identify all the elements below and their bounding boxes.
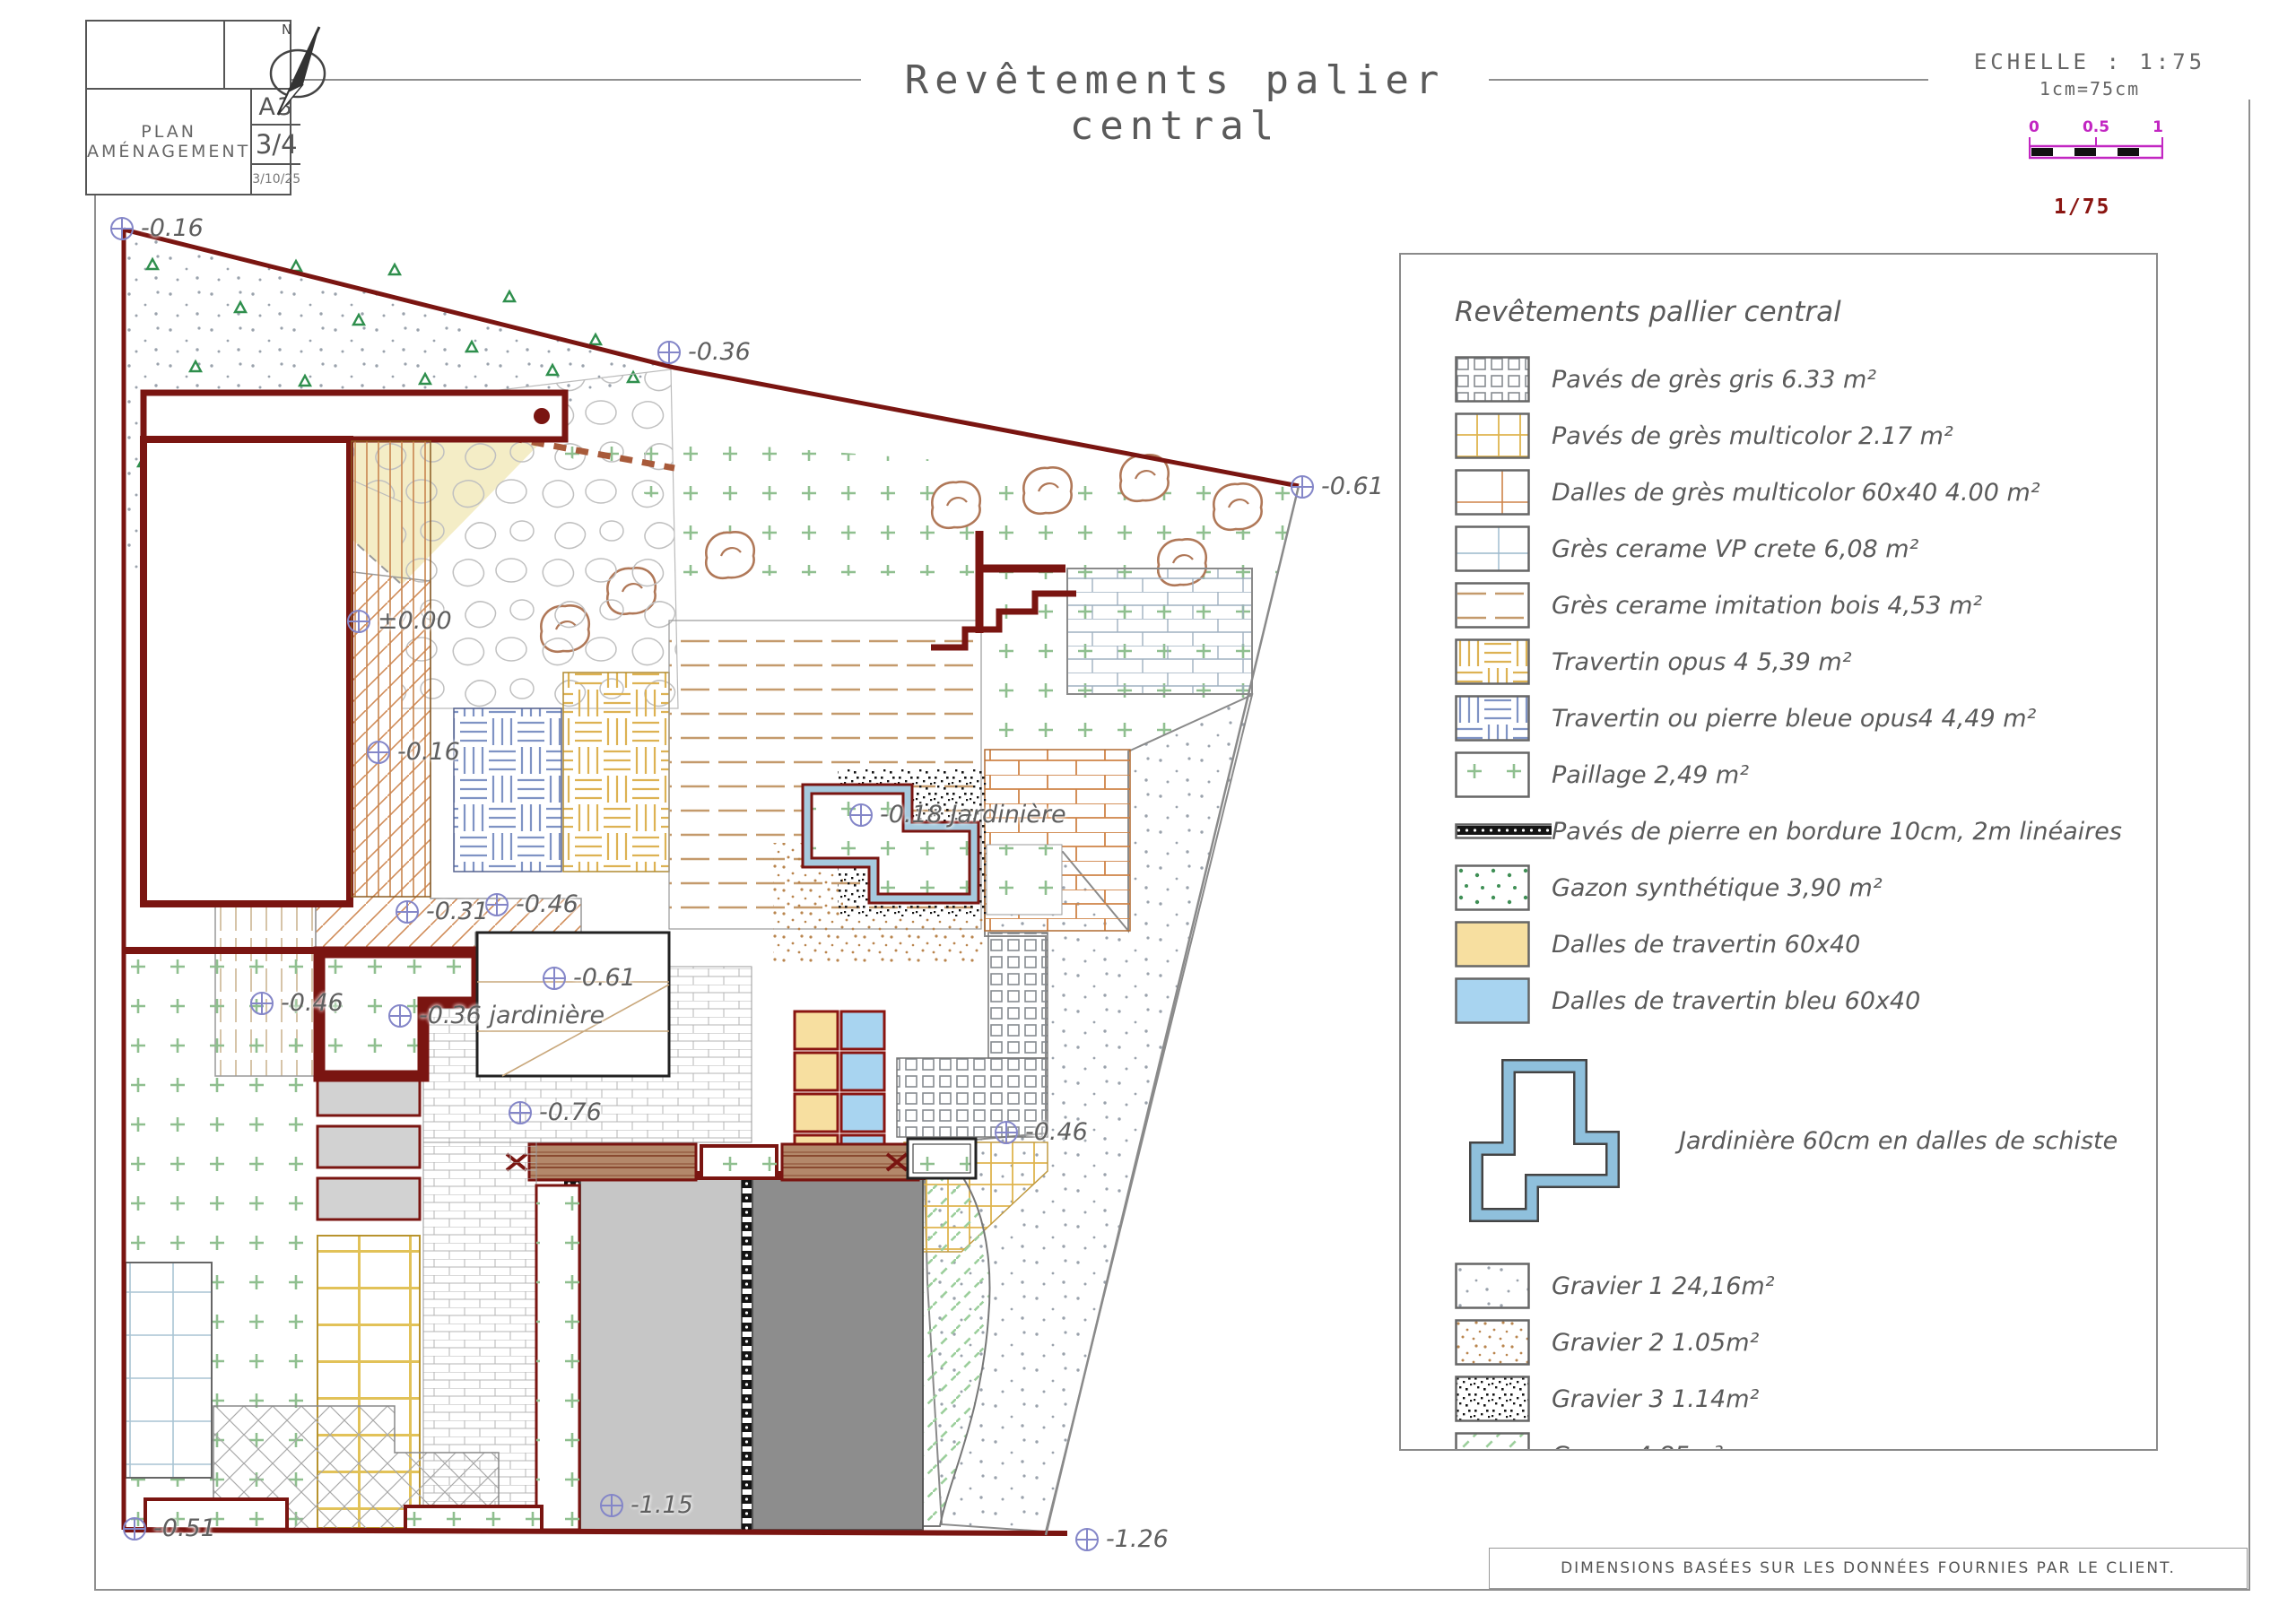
sheet-date: 3/10/25	[252, 165, 300, 194]
north-letter: N	[282, 22, 291, 38]
legend-item: Dalles de travertin bleu 60x40	[1455, 976, 2156, 1025]
legend-swatch-icon	[1455, 356, 1552, 403]
wood-planks-1	[529, 1144, 696, 1180]
legend-item-label: Gravier 3 1.14m²	[1552, 1385, 1759, 1413]
legend-item-label: Paillage 2,49 m²	[1552, 761, 1749, 789]
scale-block: ECHELLE : 1:75 1cm=75cm	[1928, 49, 2251, 100]
disclaimer-note: DIMENSIONS BASÉES SUR LES DONNÉES FOURNI…	[1489, 1548, 2248, 1589]
legend-item-label: Gravier 1 24,16m²	[1552, 1272, 1775, 1300]
plan-regions	[124, 230, 1299, 1535]
room-061	[477, 933, 669, 1076]
legend-item: Travertin ou pierre bleue opus4 4,49 m²	[1455, 694, 2156, 742]
legend-item-label: Grès cerame VP crete 6,08 m²	[1552, 535, 1918, 563]
legend-item: Jardinière 60cm en dalles de schiste	[1455, 1055, 2156, 1226]
legend-swatch-icon	[1455, 921, 1552, 968]
legend-item: Gazon 4.85m²	[1455, 1431, 2156, 1451]
legend-item-label: Travertin ou pierre bleue opus4 4,49 m²	[1552, 705, 2036, 733]
legend-swatch-icon	[1455, 469, 1552, 516]
legend-swatch-icon	[1455, 1319, 1552, 1366]
legend-item-label: Pavés de grès multicolor 2.17 m²	[1552, 422, 1953, 450]
legend-swatch-icon	[1455, 525, 1552, 572]
opus4-area	[563, 673, 669, 872]
page-title: Revêtements palier central	[861, 52, 1489, 154]
legend-swatch-icon	[1455, 1055, 1679, 1226]
deck-dark	[752, 1178, 923, 1530]
scale-bar-graphic	[2029, 137, 2163, 161]
legend-item-label: Gravier 2 1.05m²	[1552, 1329, 1759, 1357]
opus4-bleu-area	[454, 708, 561, 872]
legend-items: Pavés de grès gris 6.33 m² Pavés de grès…	[1455, 355, 2156, 1451]
legend-swatch-icon	[1455, 638, 1552, 685]
legend-item-label: Dalles de travertin 60x40	[1552, 931, 1860, 959]
legend-swatch-icon	[1455, 412, 1552, 459]
legend-swatch-icon	[1455, 1432, 1552, 1451]
legend-item: Gazon synthétique 3,90 m²	[1455, 864, 2156, 912]
legend-swatch-icon	[1455, 864, 1552, 911]
legend-item-label: Jardinière 60cm en dalles de schiste	[1679, 1127, 2118, 1155]
legend-item-label: Pavés de grès gris 6.33 m²	[1552, 366, 1876, 394]
legend-item: Grès cerame VP crete 6,08 m²	[1455, 525, 2156, 573]
legend-item-label: Travertin opus 4 5,39 m²	[1552, 648, 1852, 676]
legend-item: Gravier 3 1.14m²	[1455, 1375, 2156, 1423]
legend-item-label: Gazon synthétique 3,90 m²	[1552, 874, 1883, 902]
scale-fraction: 1/75	[2054, 195, 2110, 219]
legend-item-label: Pavés de pierre en bordure 10cm, 2m liné…	[1552, 818, 2122, 846]
plank-panel-orange	[352, 441, 430, 897]
legend-item-label: Grès cerame imitation bois 4,53 m²	[1552, 592, 1982, 620]
legend-item: Dalles de travertin 60x40	[1455, 920, 2156, 968]
legend-item-label: Gazon 4.85m²	[1552, 1442, 1723, 1452]
legend-item: Gravier 1 24,16m²	[1455, 1262, 2156, 1310]
legend-item-label: Dalles de grès multicolor 60x40 4.00 m²	[1552, 479, 2040, 507]
paves-gris-band	[897, 1058, 1048, 1137]
deck-light	[580, 1178, 742, 1530]
legend-item: Pavés de grès multicolor 2.17 m²	[1455, 412, 2156, 460]
sheet-number: 3/4	[252, 126, 300, 165]
legend-swatch-icon	[1455, 977, 1552, 1024]
legend-item: Gravier 2 1.05m²	[1455, 1318, 2156, 1367]
legend-title: Revêtements pallier central	[1455, 296, 2156, 328]
legend-swatch-icon	[1455, 1263, 1552, 1309]
bordure-strip-mid	[742, 1178, 752, 1530]
north-compass-icon: N	[262, 18, 343, 124]
legend-swatch-icon	[1455, 751, 1552, 798]
logo-area	[87, 22, 225, 88]
title-block: PLAN AMÉNAGEMENT A3 3/4 3/10/25	[85, 20, 291, 195]
paves-gris-strip	[988, 933, 1048, 1058]
legend-panel: Revêtements pallier central Pavés de grè…	[1399, 253, 2158, 1451]
legend-swatch-icon	[1455, 823, 1552, 839]
drawing-name: PLAN AMÉNAGEMENT	[87, 90, 252, 194]
legend-item: Travertin opus 4 5,39 m²	[1455, 638, 2156, 686]
brick-area	[1067, 568, 1252, 694]
scale-sub: 1cm=75cm	[1928, 78, 2251, 100]
scale-bar: 0 0.5 1	[2029, 118, 2163, 164]
legend-swatch-icon	[1455, 695, 1552, 742]
scale-heading: ECHELLE : 1:75	[1928, 49, 2251, 74]
legend-swatch-icon	[1455, 582, 1552, 629]
building-wall-band	[143, 393, 565, 439]
legend-item: Pavés de grès gris 6.33 m²	[1455, 355, 2156, 404]
legend-item: Grès cerame imitation bois 4,53 m²	[1455, 581, 2156, 629]
legend-item: Pavés de pierre en bordure 10cm, 2m liné…	[1455, 807, 2156, 855]
legend-item: Dalles de grès multicolor 60x40 4.00 m²	[1455, 468, 2156, 516]
legend-item-label: Dalles de travertin bleu 60x40	[1552, 987, 1920, 1015]
legend-item: Paillage 2,49 m²	[1455, 751, 2156, 799]
building	[143, 439, 350, 904]
tile-grid-left	[126, 1263, 212, 1478]
legend-swatch-icon	[1455, 1376, 1552, 1422]
